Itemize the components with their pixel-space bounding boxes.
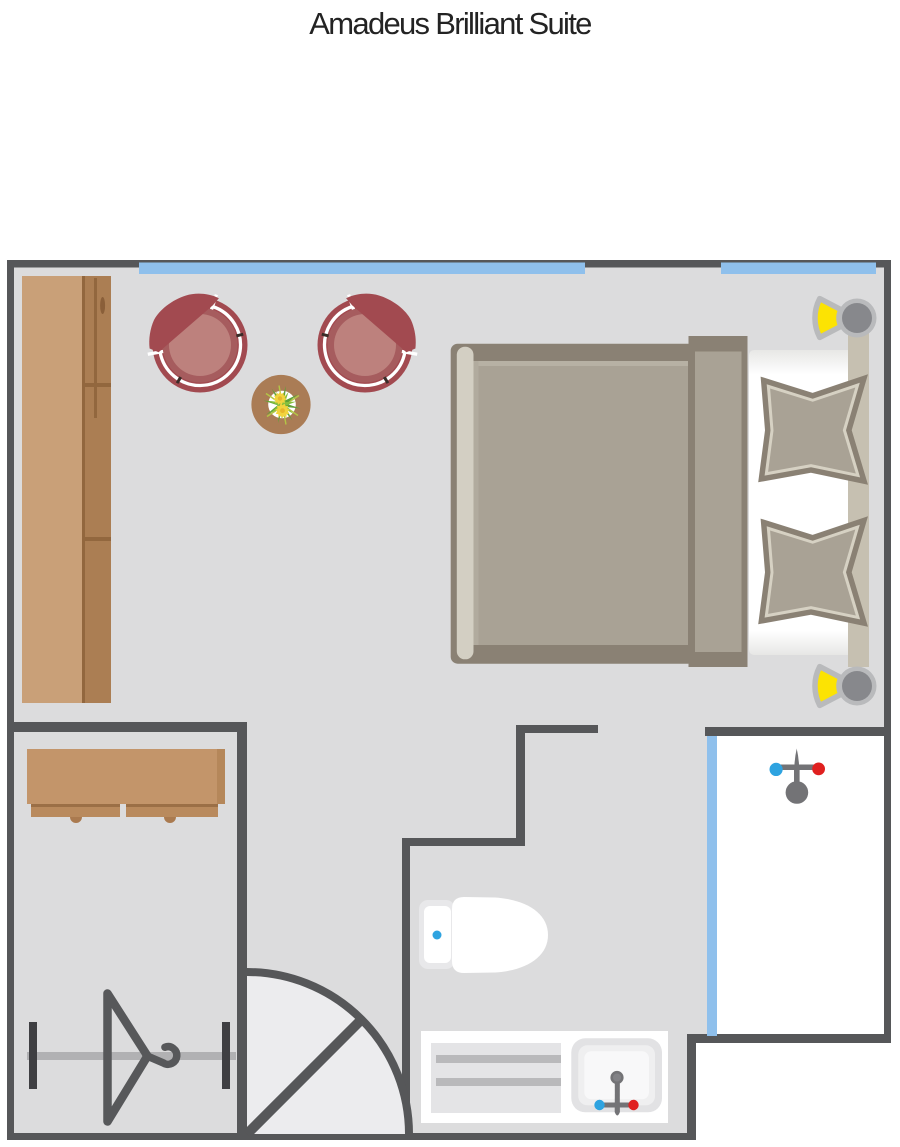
- svg-text:Amadeus Brilliant Suite: Amadeus Brilliant Suite: [309, 6, 591, 41]
